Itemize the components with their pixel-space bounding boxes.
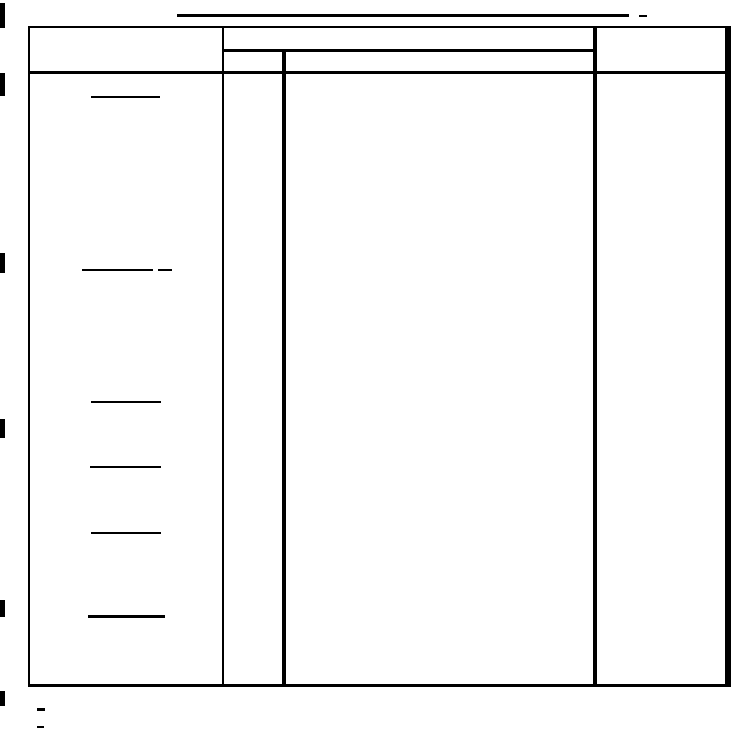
blank-fill-in-line — [90, 466, 161, 468]
binding-margin-mark — [0, 691, 5, 706]
blank-fill-in-line — [91, 532, 161, 534]
binding-margin-mark — [0, 73, 5, 96]
binding-margin-mark — [0, 419, 5, 438]
blank-fill-in-line — [82, 269, 153, 271]
binding-margin-mark — [0, 253, 5, 273]
scanned-page — [0, 0, 731, 731]
footnote-dash — [37, 726, 44, 728]
blank-fill-in-line — [158, 269, 172, 271]
title-underline — [177, 14, 629, 17]
footnote-dash — [37, 708, 45, 711]
scan-marks-layer — [0, 0, 731, 731]
blank-fill-in-line — [91, 401, 161, 403]
binding-margin-mark — [0, 600, 5, 617]
binding-margin-mark — [0, 3, 5, 28]
blank-fill-in-line — [91, 96, 160, 98]
blank-fill-in-line — [88, 615, 165, 618]
title-underline-dash — [639, 15, 647, 17]
